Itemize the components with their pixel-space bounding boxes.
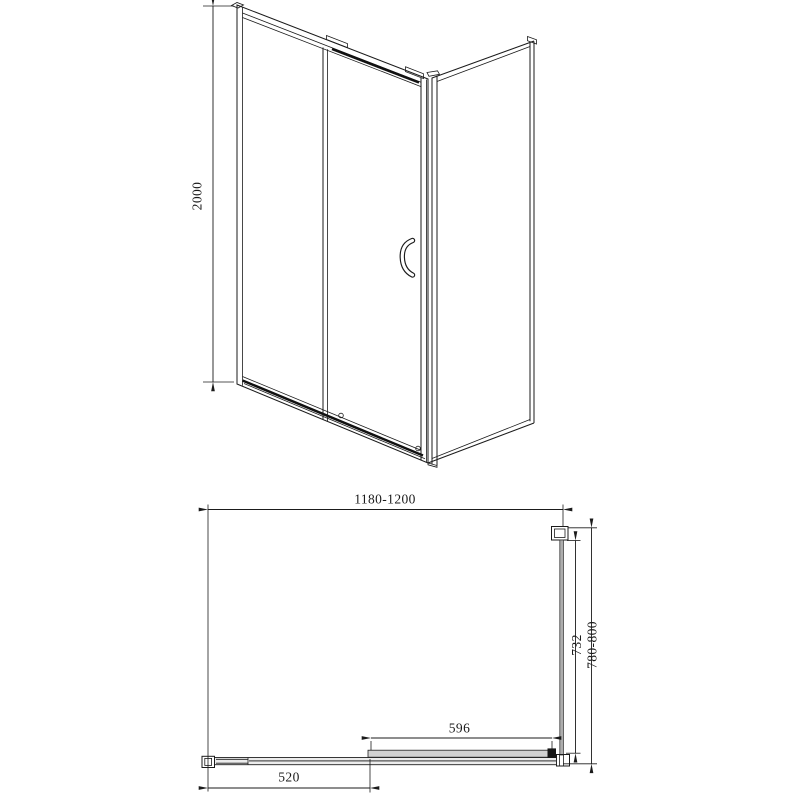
side-panel-glass [560, 540, 564, 755]
roller-bracket-icon [327, 36, 348, 48]
side-panel [428, 37, 537, 464]
panel-end-cap [548, 748, 557, 758]
height-dimension-label: 2000 [190, 182, 205, 211]
width-dimension: 1180-1200 [208, 492, 563, 792]
door-frame [232, 3, 429, 464]
corner-post [427, 71, 440, 468]
top-rail [243, 13, 422, 87]
corner-block [557, 755, 570, 767]
glass-depth-label: 732 [569, 634, 584, 655]
plan-view: 1180-1200 [202, 492, 600, 793]
sliding-panels [323, 48, 427, 463]
door-panel-dimension: 596 [371, 721, 552, 751]
drawing-canvas: 2000 1180-1200 [0, 0, 800, 800]
door-track [215, 758, 557, 765]
depth-dimension-label: 780-800 [585, 621, 600, 669]
bottom-rail [243, 377, 426, 459]
fixed-panel-label: 520 [278, 770, 299, 785]
door-panel-label: 596 [449, 721, 470, 736]
shower-enclosure-technical-drawing: 2000 1180-1200 [0, 0, 800, 800]
height-dimension: 2000 [190, 6, 235, 382]
front-3d-view: 2000 [190, 3, 537, 468]
width-dimension-label: 1180-1200 [354, 492, 416, 507]
glass-depth-dimension: 732 [566, 541, 584, 754]
roller-bracket-icon [406, 67, 424, 79]
wall-profile-top [552, 527, 569, 541]
sliding-panel-plan [368, 748, 556, 758]
door-handle [402, 241, 412, 276]
